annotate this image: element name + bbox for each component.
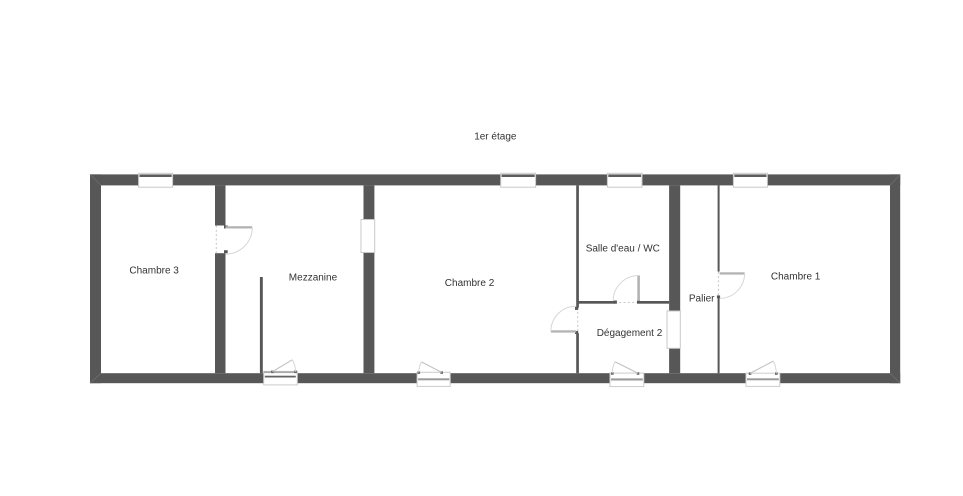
svg-text:Chambre 1: Chambre 1 bbox=[771, 271, 821, 282]
svg-text:Chambre 2: Chambre 2 bbox=[445, 278, 495, 289]
svg-text:Palier: Palier bbox=[689, 294, 715, 305]
svg-text:1er étage: 1er étage bbox=[474, 132, 517, 143]
svg-text:Chambre 3: Chambre 3 bbox=[129, 266, 179, 277]
svg-text:Mezzanine: Mezzanine bbox=[289, 273, 338, 284]
svg-text:Salle d'eau / WC: Salle d'eau / WC bbox=[586, 243, 660, 254]
svg-text:Dégagement 2: Dégagement 2 bbox=[597, 328, 663, 339]
